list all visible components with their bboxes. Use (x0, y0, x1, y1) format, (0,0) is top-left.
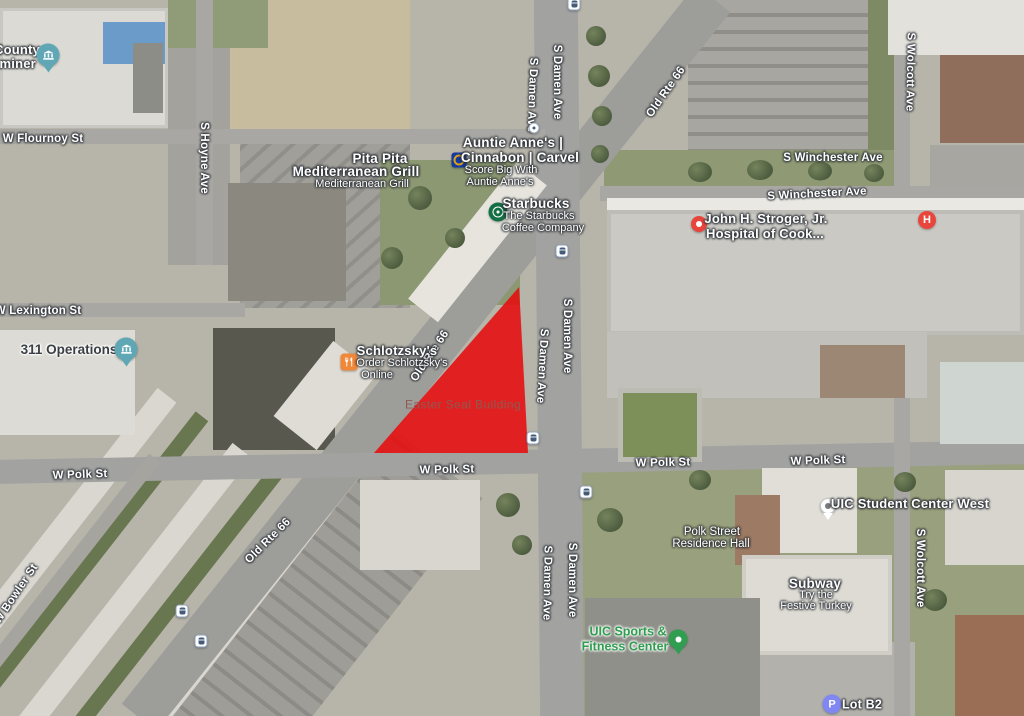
street-label-w-flournoy: W Flournoy St (3, 133, 84, 145)
tree (591, 145, 609, 163)
street-label-w-polk: W Polk St (419, 463, 474, 476)
poi-starbucks-sub2: Coffee Company (502, 223, 584, 235)
street-label-s-winchester: S Winchester Ave (783, 152, 882, 164)
tree (381, 247, 403, 269)
street-label-s-wolcott: S Wolcott Ave (914, 529, 926, 608)
restaurant-icon[interactable] (341, 354, 358, 371)
tree (688, 162, 712, 182)
street-label-w-polk: W Polk St (635, 456, 690, 469)
bus-glyph-icon (559, 248, 565, 255)
street-label-w-lexington: W Lexington St (0, 305, 81, 317)
poi-schlotzskys-title[interactable]: Schlotzsky's (357, 344, 438, 358)
tree (496, 493, 520, 517)
street-label-w-polk: W Polk St (52, 468, 107, 482)
building-green-roof (618, 388, 702, 462)
poi-subway-sub2: Festive Turkey (780, 601, 852, 613)
museum-icon (42, 50, 54, 60)
satellite-map[interactable]: Easter Seal Building W Flournoy St S Hoy… (0, 0, 1024, 716)
pin-dot (675, 636, 681, 642)
street-label-s-hoyne: S Hoyne Ave (198, 122, 210, 194)
bus-glyph-icon (198, 638, 204, 645)
poi-polk-residence-line1[interactable]: Polk Street (684, 526, 740, 538)
street-label-s-damen: S Damen Ave (551, 45, 563, 120)
poi-uic-student-center-title[interactable]: UIC Student Center West (831, 497, 989, 511)
terrain-lawn (168, 0, 268, 48)
building (360, 480, 480, 570)
museum-pin-icon[interactable] (37, 44, 60, 67)
building (940, 362, 1024, 444)
tree (923, 589, 947, 611)
street-label-s-damen: S Damen Ave (561, 299, 573, 374)
poi-starbucks-title[interactable]: Starbucks (502, 197, 569, 211)
bus-stop-icon[interactable] (527, 432, 540, 445)
recreation-pin-icon[interactable] (669, 630, 688, 649)
poi-schlotzskys-sub2: Online (361, 370, 393, 382)
pin-dot (696, 221, 702, 227)
bus-glyph-icon (530, 435, 536, 442)
civic-pin-icon[interactable] (115, 338, 138, 361)
building-uic-sports (585, 598, 760, 716)
street-label-s-damen: S Damen Ave (566, 543, 578, 618)
museum-icon (120, 344, 132, 354)
poi-county-examiner-line1[interactable]: County (0, 43, 40, 57)
bus-stop-icon[interactable] (568, 0, 581, 11)
poi-auntie-annes-sub1: Score Big With (465, 165, 538, 177)
poi-stroger-title2[interactable]: Hospital of Cook... (706, 227, 824, 241)
poi-lot-b2-title[interactable]: Lot B2 (842, 698, 882, 711)
parking-icon[interactable]: P (823, 695, 842, 714)
building (133, 43, 163, 113)
building-brick (940, 55, 1024, 143)
bus-stop-icon[interactable] (176, 605, 189, 618)
building-brick (820, 345, 905, 398)
bus-stop-icon[interactable] (580, 486, 593, 499)
poi-auntie-annes-title1[interactable]: Auntie Anne's | (463, 136, 563, 150)
street-label-s-damen: S Damen Ave (540, 545, 553, 620)
poi-stroger-title1[interactable]: John H. Stroger, Jr. (704, 212, 827, 226)
tree (408, 186, 432, 210)
poi-uic-sports-line1[interactable]: UIC Sports & (589, 625, 666, 638)
tree (747, 160, 773, 180)
building-brick (955, 615, 1024, 716)
tree (689, 470, 711, 490)
tree (597, 508, 623, 532)
poi-311-operations-title[interactable]: 311 Operations (21, 343, 118, 357)
bus-glyph-icon (571, 1, 577, 8)
tree (864, 164, 884, 182)
bus-stop-icon[interactable] (556, 245, 569, 258)
dot (533, 127, 536, 130)
tree (808, 162, 832, 181)
poi-polk-residence-line2[interactable]: Residence Hall (672, 538, 749, 550)
terrain-rubble (228, 183, 346, 301)
tree (592, 106, 612, 126)
parcel-label: Easter Seal Building (405, 399, 521, 412)
bus-glyph-icon (179, 608, 185, 615)
poi-schlotzskys-sub1: Order Schlotzsky's (356, 358, 447, 370)
tree (588, 65, 610, 87)
poi-uic-sports-line2[interactable]: Fitness Center (582, 640, 669, 653)
bus-glyph-icon (583, 489, 589, 496)
poi-auntie-annes-title2[interactable]: Cinnabon | Carvel (461, 151, 579, 165)
bus-stop-icon[interactable] (195, 635, 208, 648)
building (945, 470, 1024, 565)
tree (445, 228, 465, 248)
poi-pita-pita-subtitle: Mediterranean Grill (315, 179, 409, 191)
stop-dot-icon[interactable] (529, 123, 540, 134)
tree (586, 26, 606, 46)
poi-auntie-annes-sub2: Auntie Anne's (467, 177, 534, 189)
tree (512, 535, 532, 555)
fork-knife-icon (344, 357, 355, 368)
poi-pita-pita-title2[interactable]: Mediterranean Grill (293, 165, 420, 179)
poi-starbucks-sub1: The Starbucks (504, 211, 575, 223)
tree (894, 472, 916, 492)
poi-county-examiner-line2[interactable]: aminer (0, 57, 36, 71)
helipad-icon[interactable]: H (918, 211, 936, 229)
street-label-w-polk: W Polk St (790, 454, 845, 468)
street-label-s-wolcott: S Wolcott Ave (903, 32, 916, 111)
